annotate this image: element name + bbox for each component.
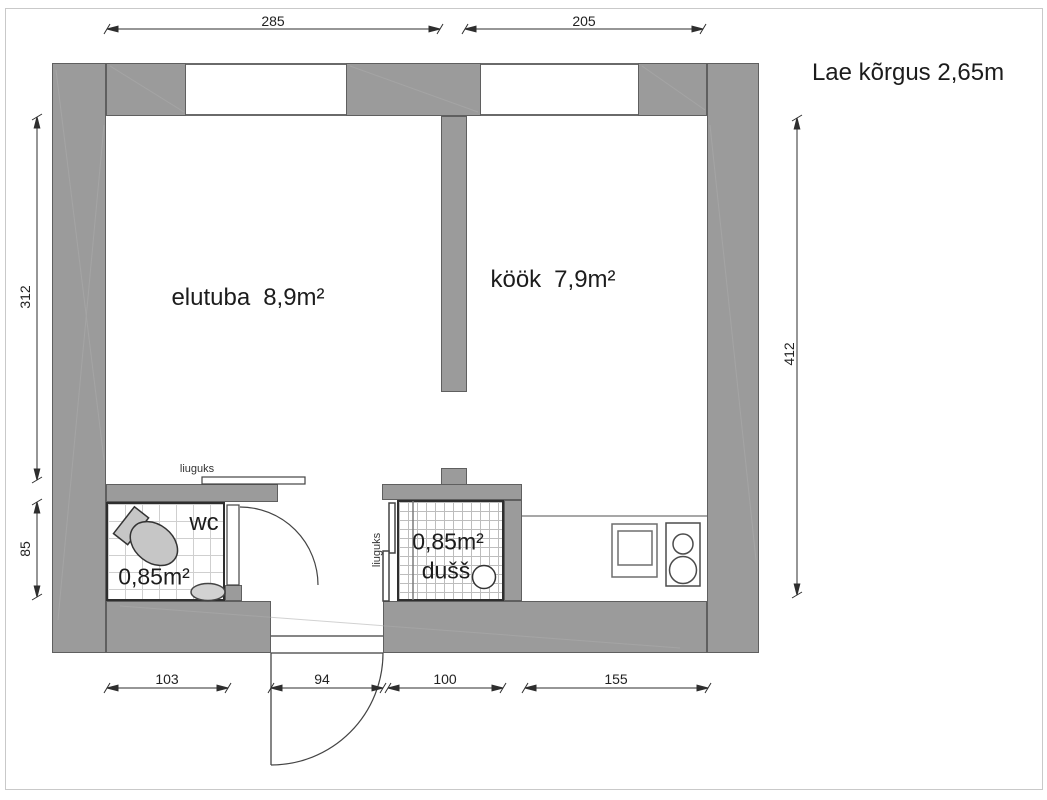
living-room-area: 8,9m² bbox=[263, 284, 324, 312]
living-room-name: elutuba bbox=[171, 284, 250, 312]
cooktop-icon bbox=[666, 523, 700, 586]
dim-living-height: 312 bbox=[17, 285, 33, 308]
living-room-label: elutuba 8,9m² bbox=[171, 284, 324, 312]
shower-name: dušš bbox=[422, 558, 471, 585]
dim-kitchen-counter-width: 155 bbox=[604, 671, 627, 687]
dim-total-height: 412 bbox=[781, 342, 797, 365]
wc-sliding-door-label: liuguks bbox=[180, 463, 214, 475]
entry-door-swing-arc bbox=[271, 653, 383, 765]
dim-kitchen-width: 205 bbox=[572, 13, 595, 29]
ceiling-height-note: Lae kõrgus 2,65m bbox=[812, 59, 1004, 87]
entry-threshold bbox=[271, 636, 383, 653]
shower-sliding-door-panels bbox=[383, 503, 395, 601]
wc-name: wc bbox=[189, 509, 218, 537]
shower-area: 0,85m² bbox=[412, 529, 484, 556]
kitchen-name: köök bbox=[490, 266, 541, 294]
shower-sliding-door-label: liuguks bbox=[371, 533, 383, 567]
dim-wc-width: 103 bbox=[155, 671, 178, 687]
wc-door-swing-arc bbox=[240, 507, 318, 585]
dim-wc-height: 85 bbox=[17, 541, 33, 557]
wc-area: 0,85m² bbox=[118, 564, 190, 591]
floor-plan: Lae kõrgus 2,65m elutuba 8,9m² köök 7,9m… bbox=[0, 0, 1047, 800]
wc-door-leaf bbox=[227, 505, 239, 585]
kitchen-area: 7,9m² bbox=[554, 266, 615, 294]
dim-living-width: 285 bbox=[261, 13, 284, 29]
kitchen-label: köök 7,9m² bbox=[490, 266, 615, 294]
shower-drain-icon bbox=[473, 566, 496, 589]
oven-icon bbox=[612, 524, 657, 577]
wc-sliding-door-panel bbox=[202, 477, 305, 484]
wc-sink-icon bbox=[191, 584, 225, 601]
dim-shower-width: 100 bbox=[433, 671, 456, 687]
dim-entry-width: 94 bbox=[314, 671, 330, 687]
dimension-lines bbox=[32, 24, 802, 693]
